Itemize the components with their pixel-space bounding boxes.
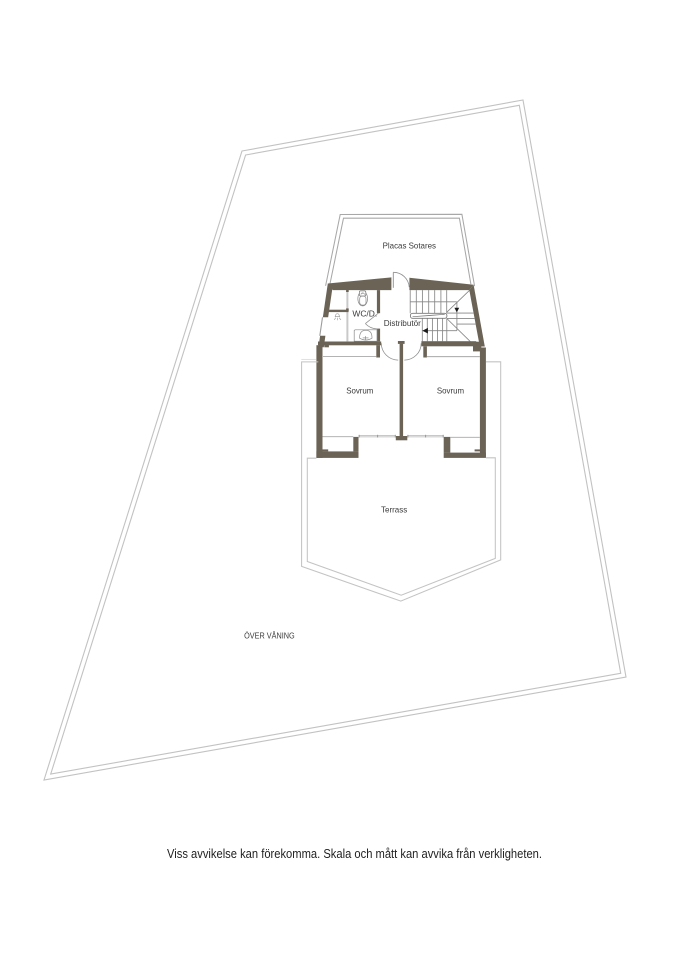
svg-text:Sovrum: Sovrum [437,387,464,396]
svg-text:Sovrum: Sovrum [346,387,373,396]
svg-text:ÖVER VÅNING: ÖVER VÅNING [244,631,295,641]
svg-text:Placas Sotares: Placas Sotares [383,241,436,250]
svg-text:Viss avvikelse kan förekomma.: Viss avvikelse kan förekomma. Skala och … [167,846,542,861]
svg-text:WC/D.: WC/D. [352,310,377,319]
svg-text:Terrass: Terrass [381,505,407,514]
svg-text:Distributör: Distributör [384,319,421,328]
